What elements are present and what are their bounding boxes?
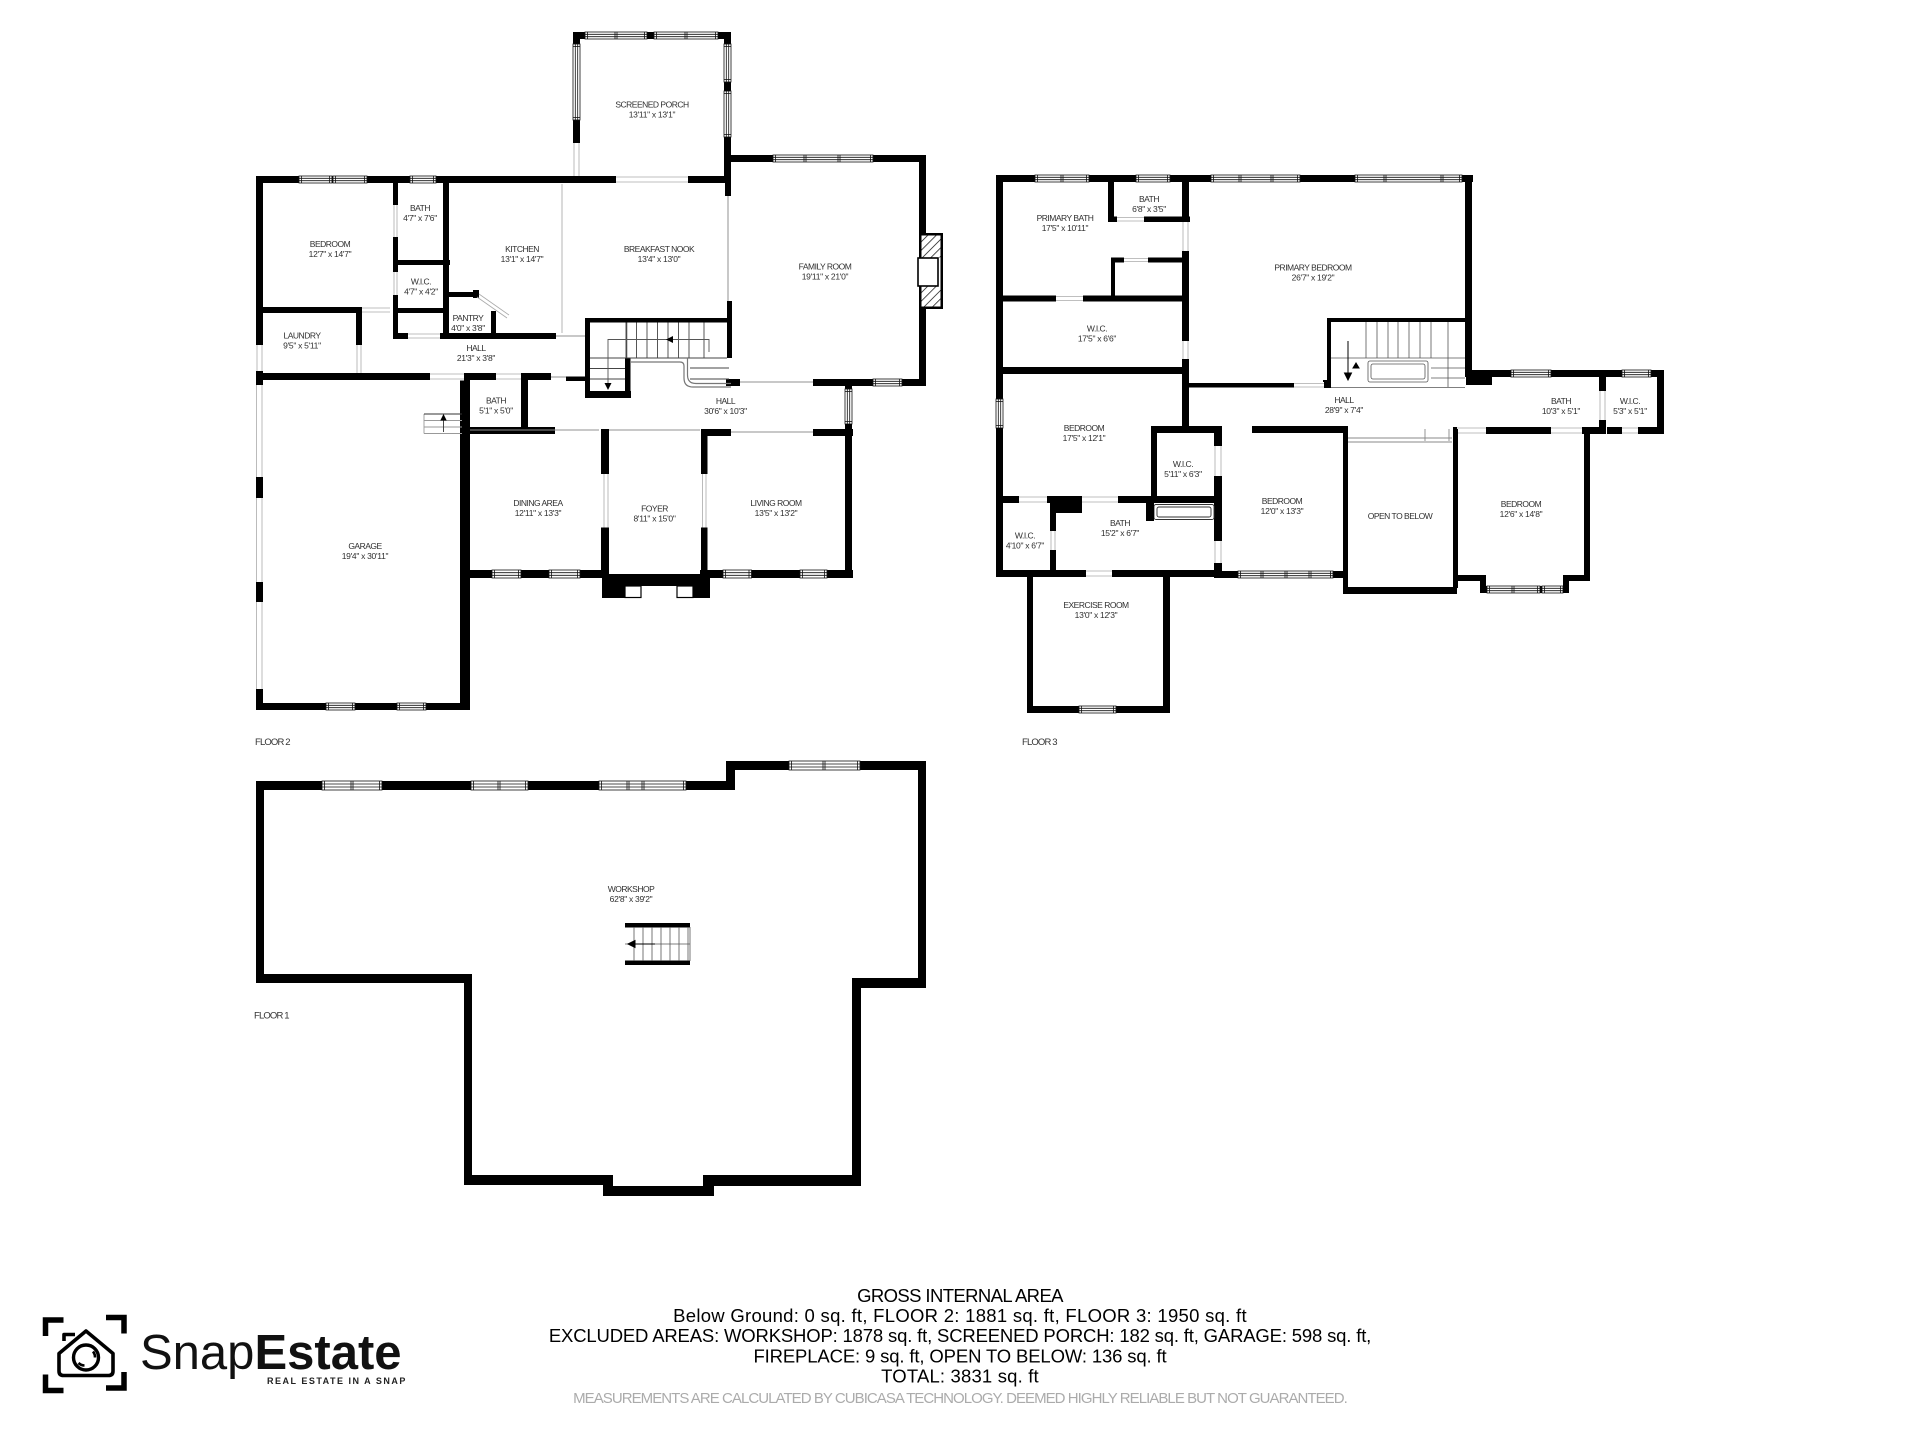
svg-text:6'8" x 3'5": 6'8" x 3'5" (1132, 204, 1166, 214)
svg-text:13'11" x 13'1": 13'11" x 13'1" (629, 110, 676, 120)
svg-text:9'5" x 5'11": 9'5" x 5'11" (283, 341, 321, 351)
svg-text:LAUNDRY: LAUNDRY (284, 331, 322, 341)
svg-text:SnapEstate: SnapEstate (140, 1326, 402, 1380)
svg-text:4'7" x 4'2": 4'7" x 4'2" (404, 287, 438, 297)
svg-text:GROSS INTERNAL AREA: GROSS INTERNAL AREA (857, 1285, 1064, 1306)
svg-text:W.I.C.: W.I.C. (1620, 396, 1640, 406)
svg-text:4'7" x 7'6": 4'7" x 7'6" (403, 213, 437, 223)
svg-text:TOTAL: 3831 sq. ft: TOTAL: 3831 sq. ft (881, 1366, 1039, 1387)
svg-text:13'0" x 12'3": 13'0" x 12'3" (1075, 610, 1118, 620)
svg-text:4'0" x 3'8": 4'0" x 3'8" (451, 323, 485, 333)
svg-text:EXERCISE ROOM: EXERCISE ROOM (1063, 600, 1129, 610)
svg-text:DINING AREA: DINING AREA (513, 498, 563, 508)
svg-text:MEASUREMENTS ARE CALCULATED BY: MEASUREMENTS ARE CALCULATED BY CUBICASA … (573, 1390, 1347, 1407)
svg-text:17'5" x 6'6": 17'5" x 6'6" (1078, 334, 1117, 344)
svg-text:W.I.C.: W.I.C. (1173, 459, 1193, 469)
svg-text:17'5" x 12'1": 17'5" x 12'1" (1063, 433, 1106, 443)
svg-text:30'6" x 10'3": 30'6" x 10'3" (704, 406, 747, 416)
svg-text:19'11" x 21'0": 19'11" x 21'0" (802, 272, 849, 282)
svg-text:17'5" x 10'11": 17'5" x 10'11" (1042, 223, 1089, 233)
svg-text:BEDROOM: BEDROOM (310, 239, 351, 249)
svg-text:5'3" x 5'1": 5'3" x 5'1" (1613, 406, 1647, 416)
svg-text:8'11" x 15'0": 8'11" x 15'0" (633, 514, 675, 524)
svg-text:BATH: BATH (1551, 396, 1571, 406)
svg-text:12'6" x 14'8": 12'6" x 14'8" (1500, 509, 1543, 519)
svg-text:BREAKFAST NOOK: BREAKFAST NOOK (624, 244, 695, 254)
svg-text:W.I.C.: W.I.C. (1015, 531, 1035, 541)
svg-text:BATH: BATH (486, 396, 506, 406)
svg-text:15'2" x 6'7": 15'2" x 6'7" (1101, 528, 1140, 538)
svg-text:W.I.C.: W.I.C. (411, 277, 431, 287)
svg-text:BEDROOM: BEDROOM (1262, 496, 1303, 506)
svg-text:13'4" x 13'0": 13'4" x 13'0" (638, 254, 681, 264)
svg-text:HALL: HALL (1334, 395, 1354, 405)
svg-text:BEDROOM: BEDROOM (1501, 499, 1542, 509)
svg-text:W.I.C.: W.I.C. (1087, 324, 1107, 334)
svg-text:HALL: HALL (466, 343, 486, 353)
svg-text:FLOOR 2: FLOOR 2 (255, 737, 290, 748)
svg-text:13'1" x 14'7": 13'1" x 14'7" (501, 254, 544, 264)
svg-text:BEDROOM: BEDROOM (1064, 423, 1105, 433)
svg-text:FIREPLACE: 9 sq. ft, OPEN TO B: FIREPLACE: 9 sq. ft, OPEN TO BELOW: 136 … (753, 1346, 1166, 1367)
svg-text:OPEN TO BELOW: OPEN TO BELOW (1368, 511, 1433, 521)
svg-text:PRIMARY BATH: PRIMARY BATH (1037, 213, 1094, 223)
svg-text:28'9" x 7'4": 28'9" x 7'4" (1325, 405, 1364, 415)
svg-text:HALL: HALL (716, 396, 736, 406)
svg-text:21'3" x 3'8": 21'3" x 3'8" (457, 353, 496, 363)
svg-text:WORKSHOP: WORKSHOP (608, 884, 655, 894)
svg-text:PANTRY: PANTRY (453, 313, 485, 323)
svg-text:13'5" x 13'2": 13'5" x 13'2" (755, 508, 798, 518)
svg-text:12'0" x 13'3": 12'0" x 13'3" (1261, 506, 1304, 516)
svg-text:19'4" x 30'11": 19'4" x 30'11" (342, 551, 389, 561)
svg-text:FOYER: FOYER (641, 504, 668, 514)
svg-text:KITCHEN: KITCHEN (505, 244, 539, 254)
svg-text:GARAGE: GARAGE (348, 541, 382, 551)
svg-text:LIVING ROOM: LIVING ROOM (750, 498, 802, 508)
svg-text:5'11" x 6'3": 5'11" x 6'3" (1164, 469, 1202, 479)
svg-text:62'8" x 39'2": 62'8" x 39'2" (610, 894, 653, 904)
svg-text:12'7" x 14'7": 12'7" x 14'7" (309, 249, 352, 259)
svg-text:PRIMARY BEDROOM: PRIMARY BEDROOM (1274, 263, 1352, 273)
svg-text:Below Ground: 0 sq. ft, FLOOR: Below Ground: 0 sq. ft, FLOOR 2: 1881 sq… (673, 1305, 1247, 1326)
svg-text:26'7" x 19'2": 26'7" x 19'2" (1292, 273, 1335, 283)
svg-text:FLOOR 3: FLOOR 3 (1022, 737, 1057, 748)
svg-text:12'11" x 13'3": 12'11" x 13'3" (515, 508, 562, 518)
svg-text:4'10" x 6'7": 4'10" x 6'7" (1006, 541, 1045, 551)
svg-text:BATH: BATH (1139, 194, 1159, 204)
svg-text:SCREENED PORCH: SCREENED PORCH (615, 100, 689, 110)
svg-text:BATH: BATH (410, 203, 430, 213)
svg-text:EXCLUDED AREAS: WORKSHOP: 1878: EXCLUDED AREAS: WORKSHOP: 1878 sq. ft, S… (549, 1325, 1371, 1346)
svg-text:FLOOR 1: FLOOR 1 (254, 1011, 289, 1022)
svg-text:10'3" x 5'1": 10'3" x 5'1" (1542, 406, 1581, 416)
svg-text:5'1" x 5'0": 5'1" x 5'0" (479, 406, 513, 416)
svg-text:BATH: BATH (1110, 518, 1130, 528)
svg-text:REAL ESTATE IN A SNAP: REAL ESTATE IN A SNAP (267, 1376, 407, 1386)
svg-text:FAMILY ROOM: FAMILY ROOM (799, 262, 852, 272)
